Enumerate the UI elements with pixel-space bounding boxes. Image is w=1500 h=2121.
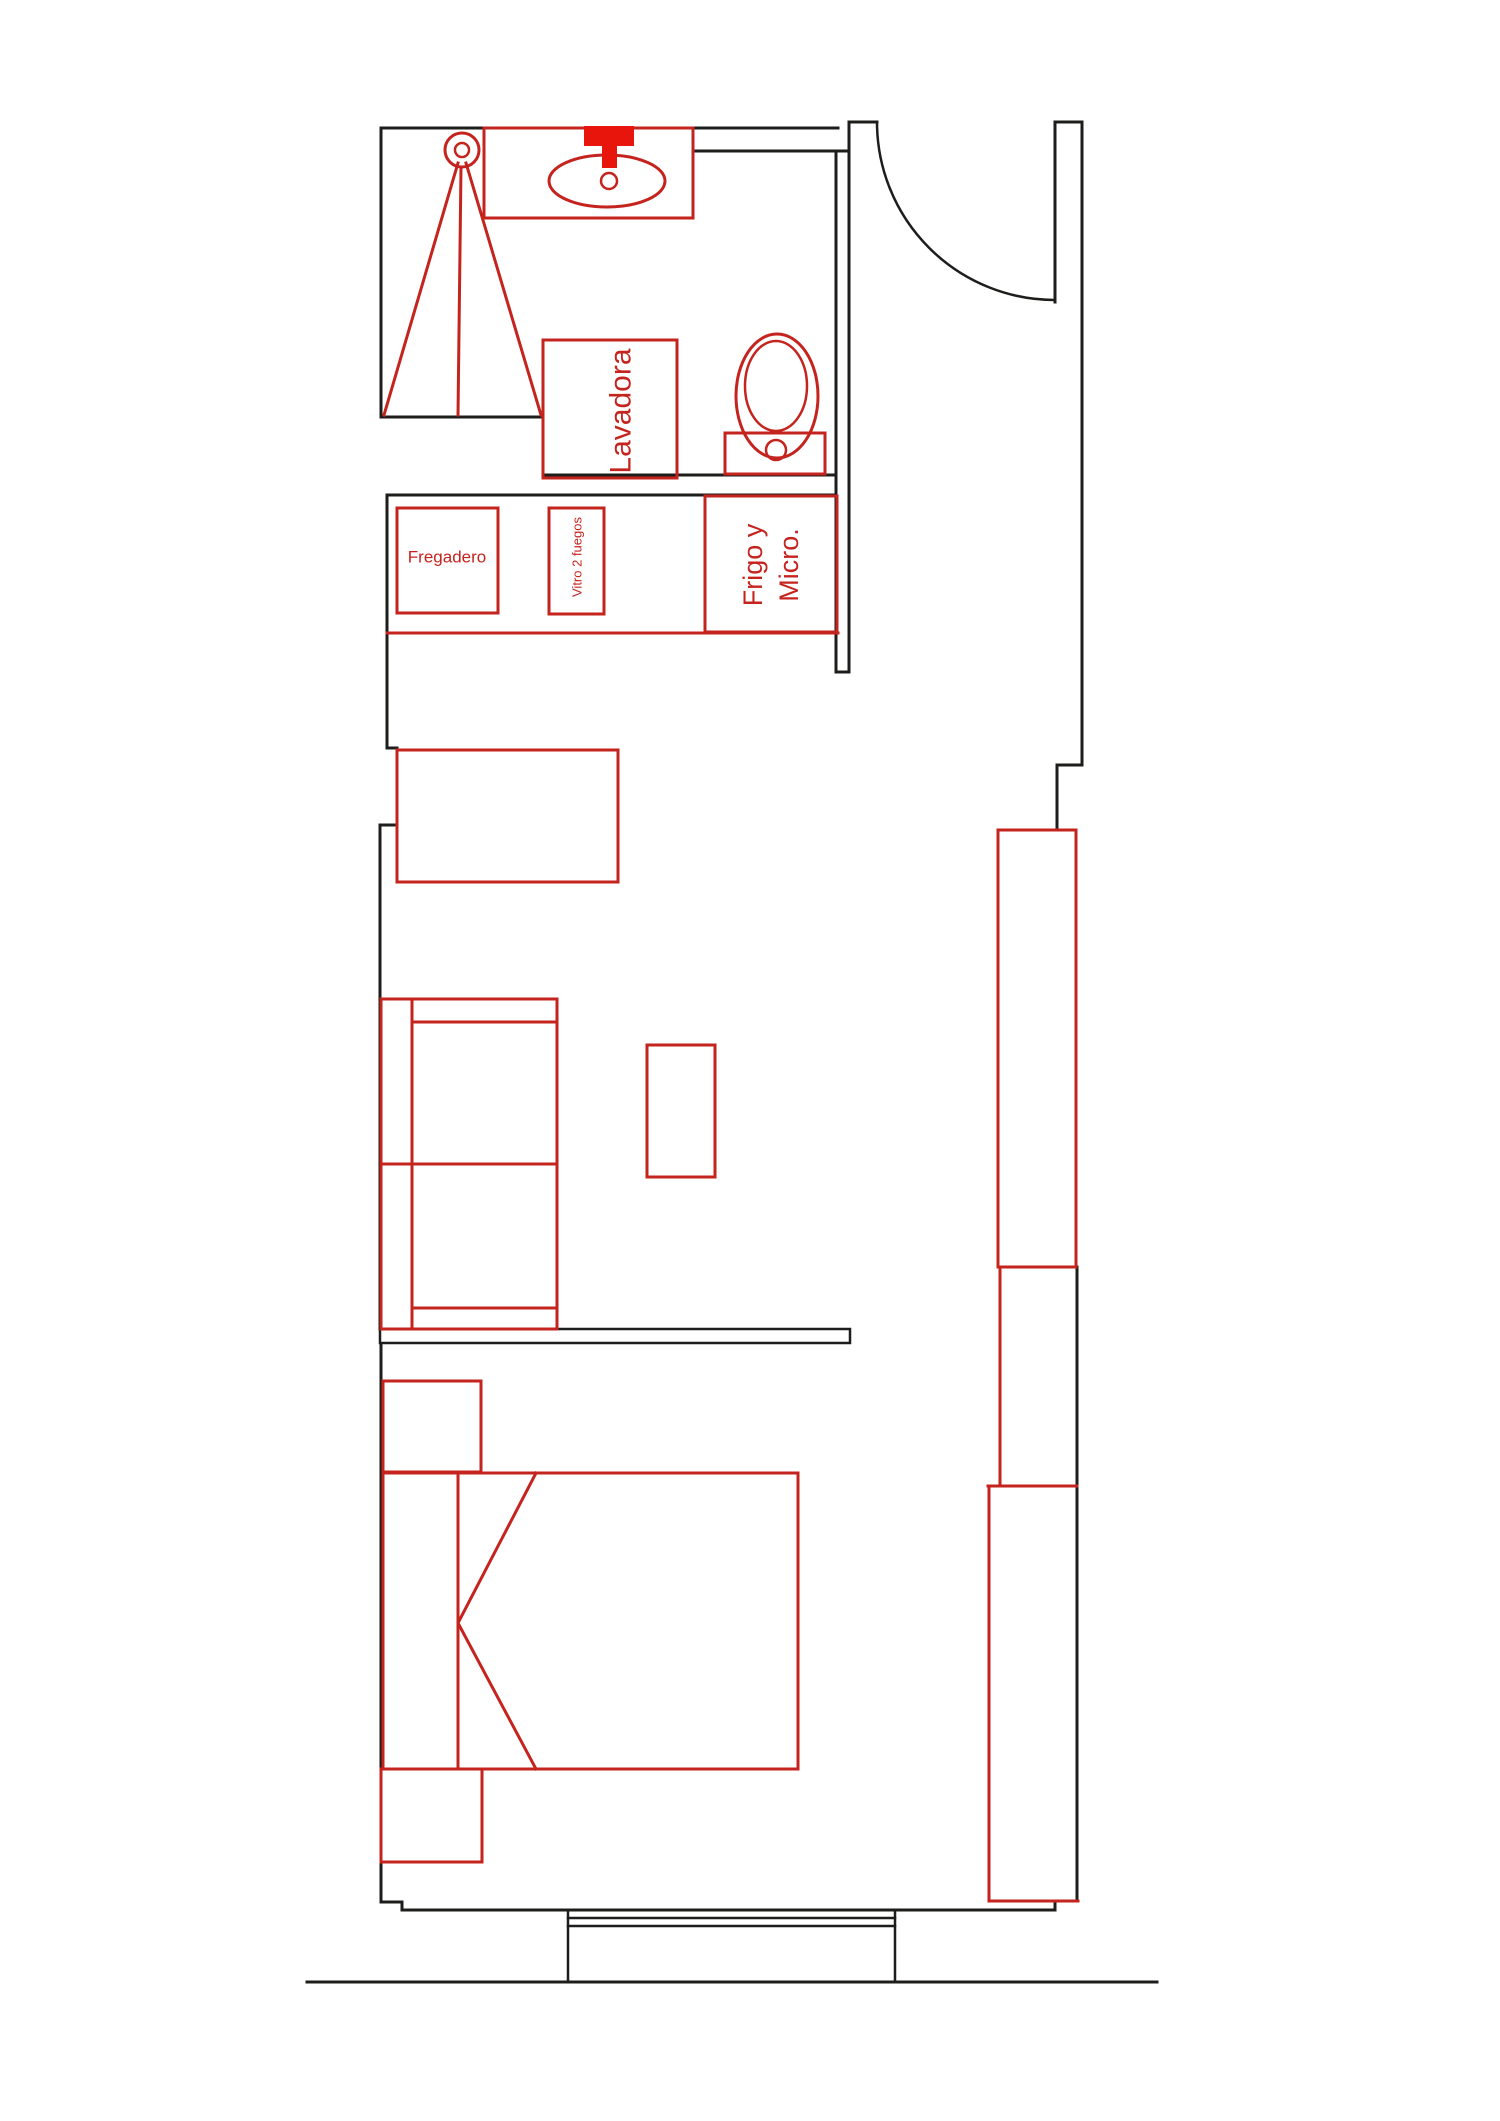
toilet-bowl-inner (745, 341, 807, 431)
window (568, 1910, 895, 1982)
wall-bottom-left-step (381, 1902, 402, 1910)
kitchen-sink-label: Fregadero (408, 548, 486, 567)
hob-label: Vitro 2 fuegos (570, 517, 585, 597)
shower-head-outer (445, 133, 479, 167)
toilet (725, 334, 825, 474)
faucet-stem (602, 146, 617, 168)
nightstand-bottom (381, 1769, 482, 1862)
bedroom-furniture (381, 1381, 798, 1862)
floor-plan-drawing: Lavadora Fregadero Vitro 2 fuegos Frigo … (0, 0, 1500, 2121)
kitchen: Fregadero Vitro 2 fuegos Frigo y Micro. (387, 496, 838, 633)
washbasin-drain (601, 173, 617, 189)
wardrobe-section-top (998, 830, 1076, 1267)
desk (397, 750, 618, 882)
sofa (381, 999, 557, 1329)
floor-plan-page: Lavadora Fregadero Vitro 2 fuegos Frigo … (0, 0, 1500, 2121)
walls (380, 122, 1082, 1910)
entry-door (877, 122, 1055, 300)
fridge-label-line1: Frigo y (738, 523, 768, 606)
divider-wall (380, 1329, 850, 1343)
washing-machine-label: Lavadora (605, 348, 638, 473)
nightstand-top (383, 1381, 481, 1472)
shower-spray-middle (458, 167, 461, 415)
wardrobe (988, 830, 1078, 1901)
fridge-label-line2: Micro. (774, 528, 804, 602)
washing-machine: Lavadora (543, 340, 677, 478)
bed (383, 1473, 798, 1769)
faucet-bar (584, 126, 634, 146)
coffee-table (647, 1045, 715, 1177)
washbasin (484, 126, 693, 218)
shower (384, 133, 541, 415)
shower-spray-left (384, 163, 458, 415)
bed-blanket-fold (458, 1473, 536, 1769)
entry-door-arc (877, 122, 1055, 300)
fridge-microwave-box (705, 496, 837, 632)
shower-spray-right (466, 163, 541, 415)
shower-head-inner (455, 143, 469, 157)
